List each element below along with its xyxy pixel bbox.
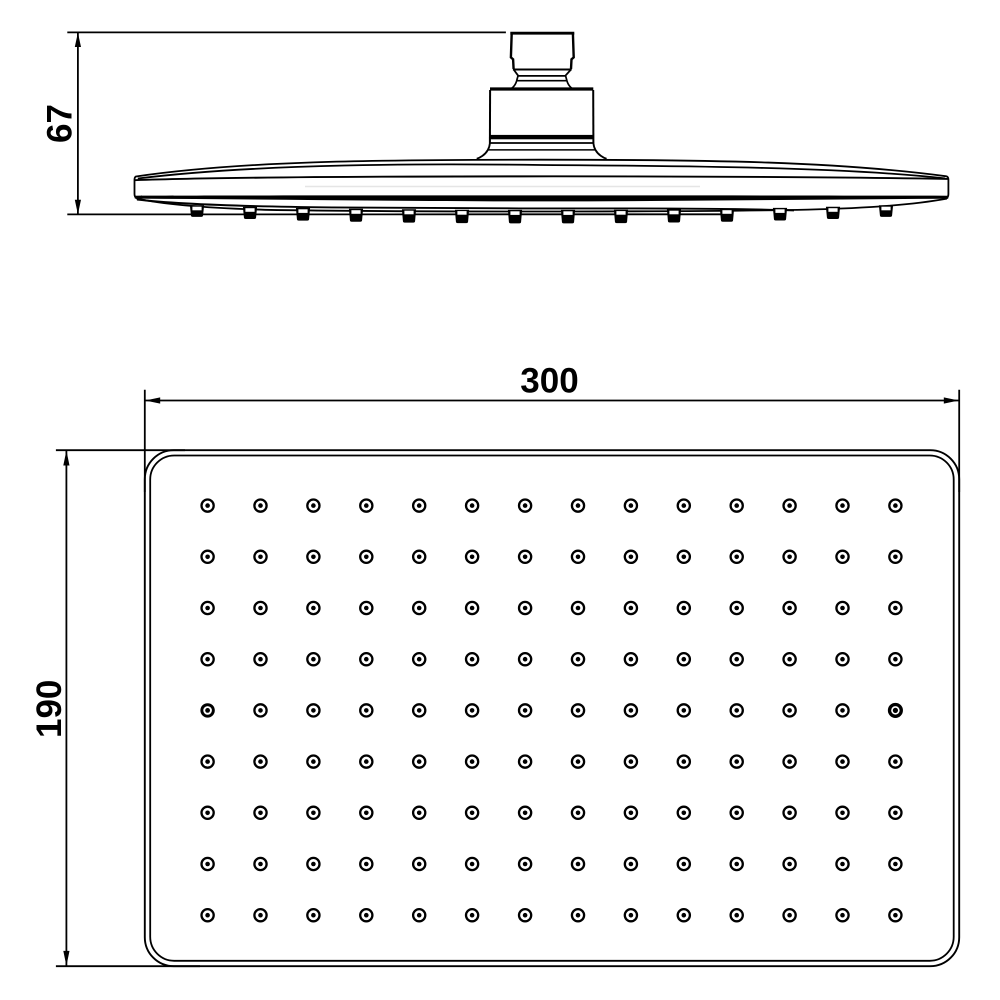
- svg-text:67: 67: [41, 104, 80, 143]
- svg-text:300: 300: [520, 362, 578, 401]
- svg-text:190: 190: [30, 680, 69, 738]
